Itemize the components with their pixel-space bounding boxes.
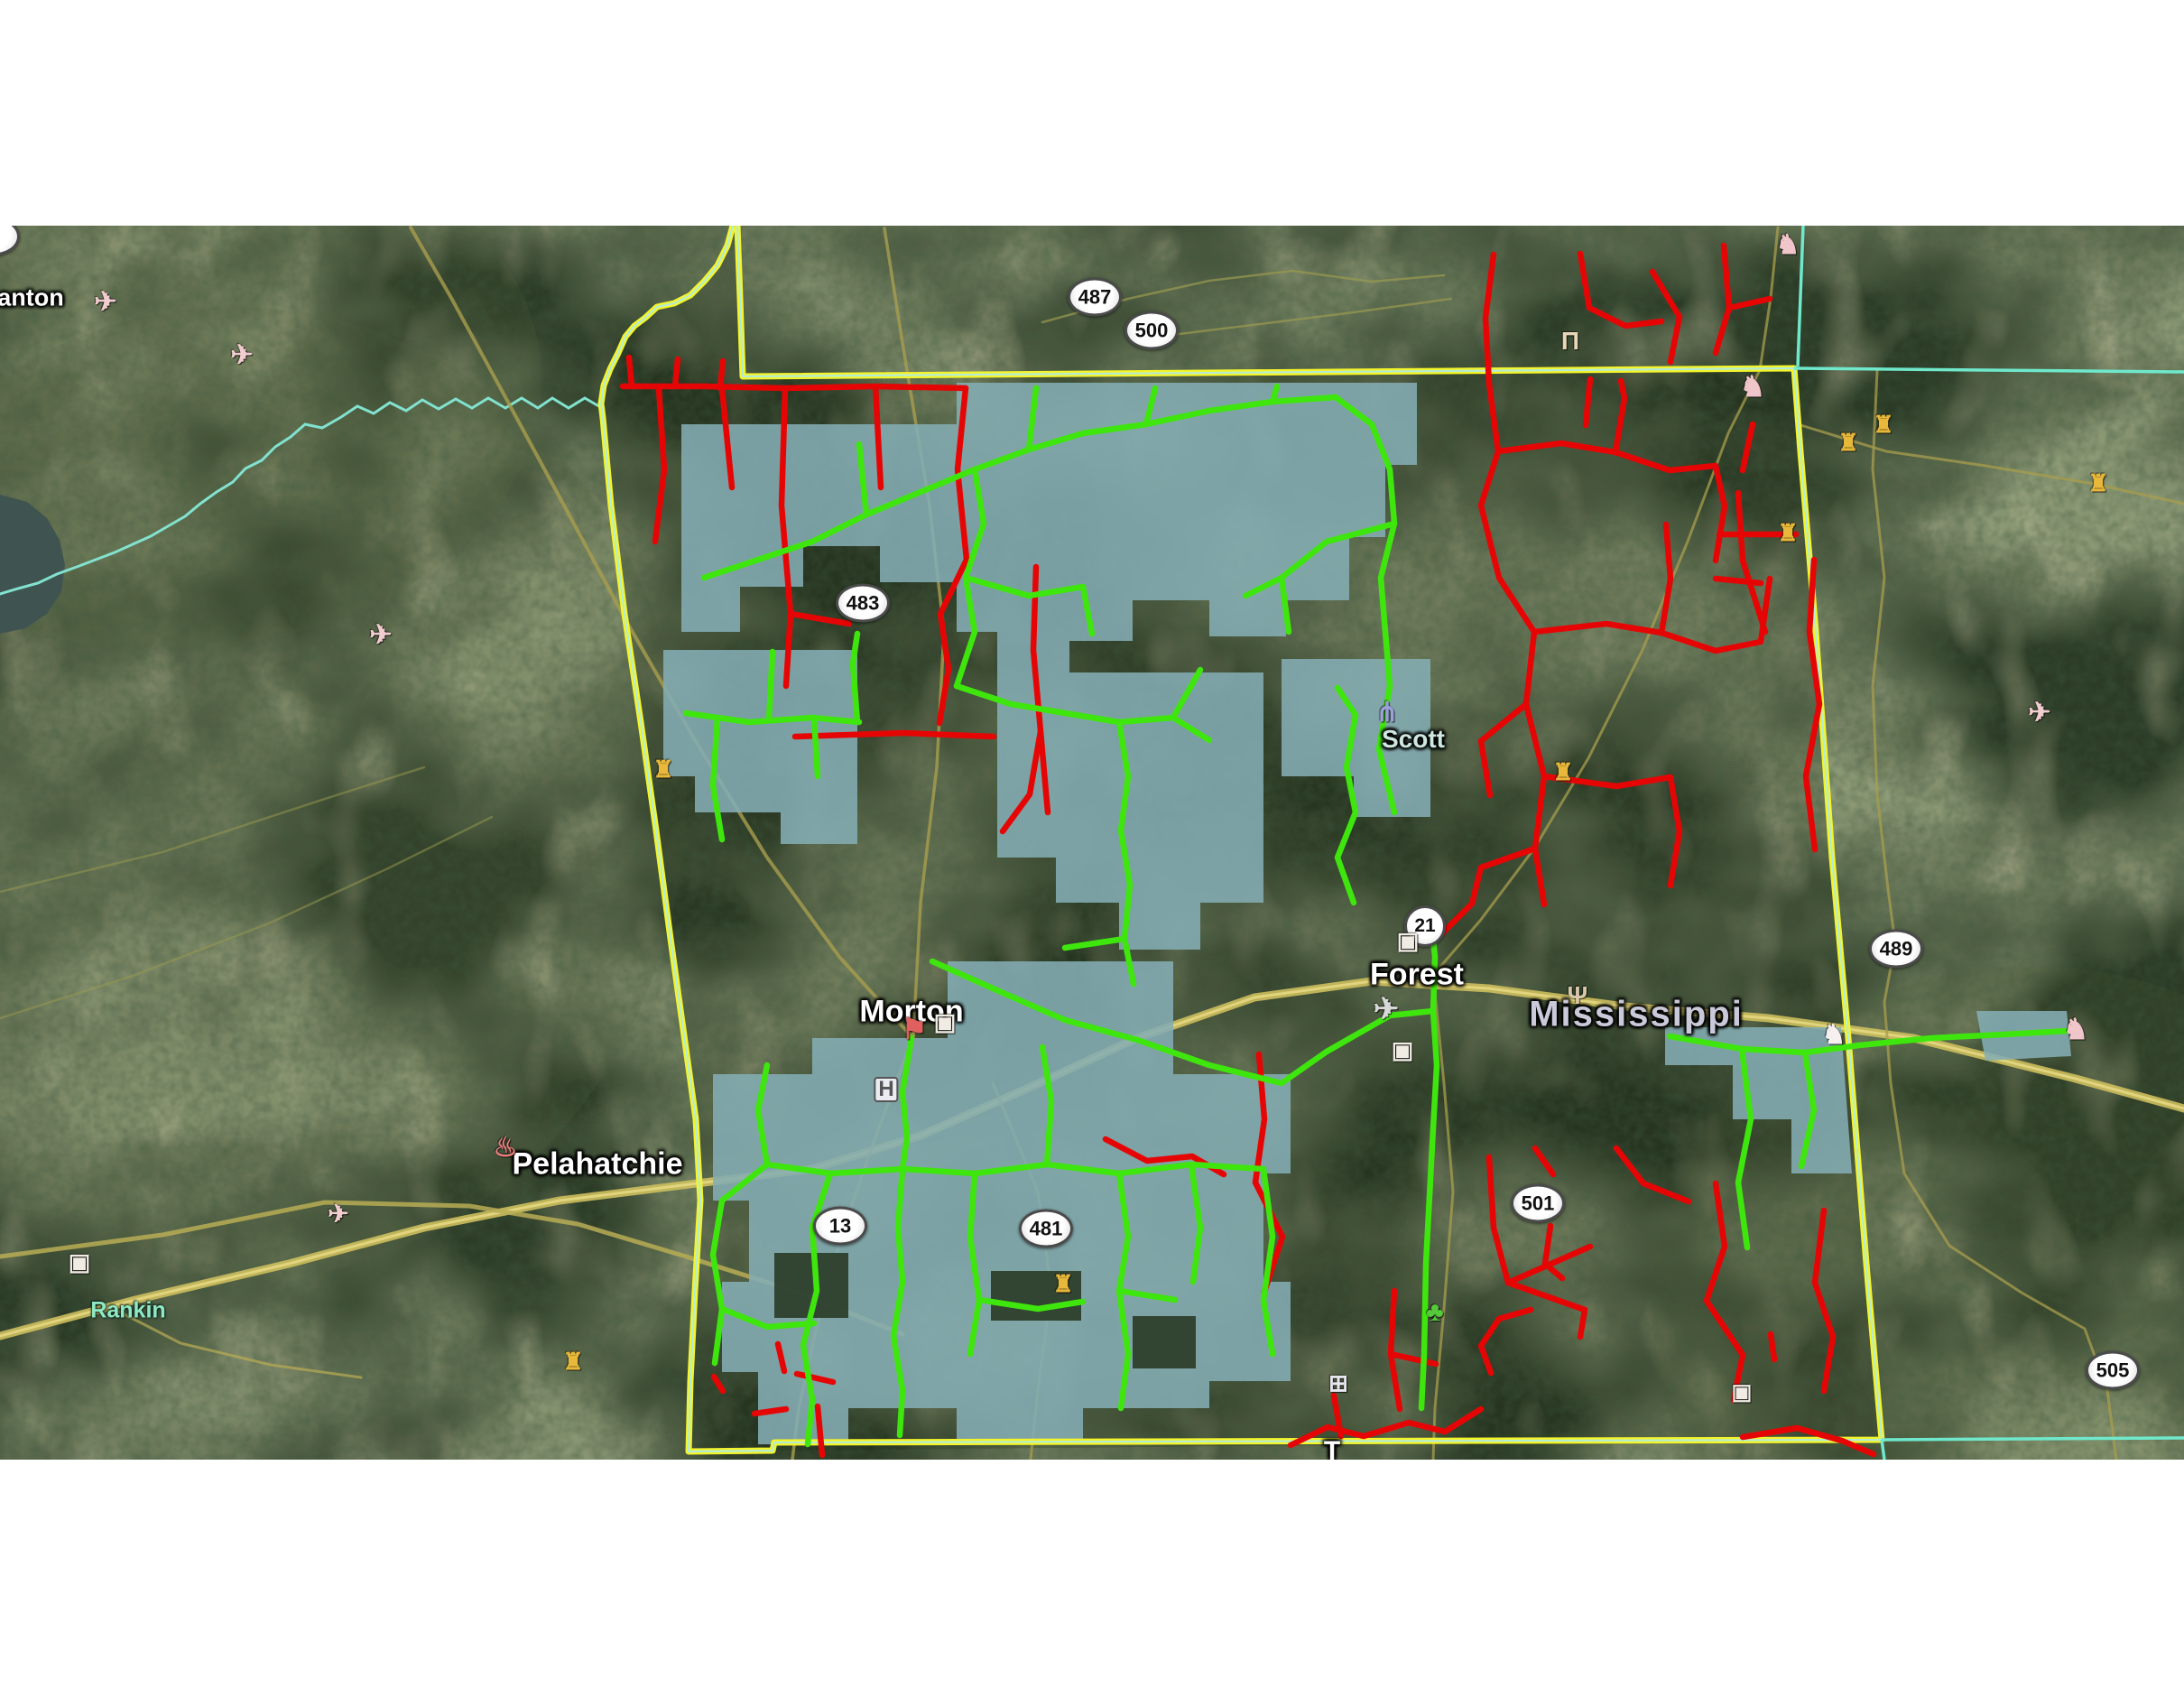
satellite-map-canvas[interactable]	[0, 0, 2184, 1688]
map-screenshot: antonMortonForestScottPelahatchieTMissis…	[0, 0, 2184, 1688]
